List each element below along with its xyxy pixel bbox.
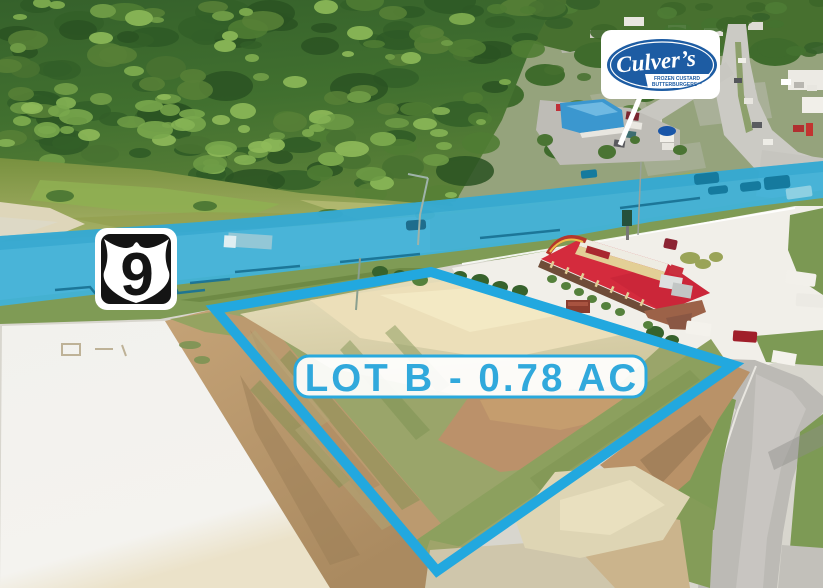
svg-text:LOT B - 0.78 AC: LOT B - 0.78 AC [305,357,640,400]
svg-text:9: 9 [120,241,153,308]
svg-text:BUTTERBURGERS™: BUTTERBURGERS™ [652,82,702,88]
